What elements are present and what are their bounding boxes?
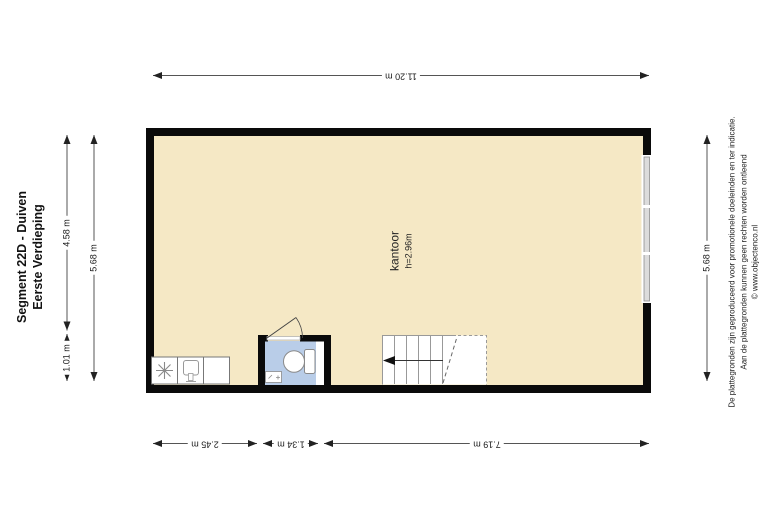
room-label: kantoor h=2.96m	[389, 231, 414, 271]
stairs	[383, 336, 487, 385]
washbasin-icon	[266, 372, 282, 383]
disclaimer-copyright: © www.objectenco.nl	[750, 116, 762, 407]
room-name: kantoor	[389, 231, 402, 271]
dim-label-bottom-2: 1.34 m	[274, 438, 308, 449]
dim-label-left-bottom: 1.01 m	[62, 341, 73, 375]
dim-label-right-total: 5.68 m	[702, 241, 713, 275]
doorway-opening	[267, 337, 300, 341]
floorplan-page: 11.20 m 2.45 m 1.34 m 7.19 m 4.58 m 1.01…	[0, 0, 780, 520]
plan-title-line2: Eerste Verdieping	[30, 191, 46, 323]
dim-label-top-width: 11.20 m	[382, 70, 420, 81]
dim-label-left-total: 5.68 m	[89, 241, 100, 275]
disclaimer-line1: De plattegronden zijn geproduceerd voor …	[727, 116, 739, 407]
room-ceiling-height: h=2.96m	[404, 231, 414, 271]
toilet-icon	[284, 350, 316, 374]
window-glazing-icon	[642, 155, 653, 303]
kitchen-counter	[152, 357, 230, 384]
dim-label-left-top: 4.58 m	[62, 216, 73, 250]
snowflake-icon	[156, 362, 173, 379]
bathroom-partition	[316, 341, 324, 385]
dim-label-bottom-1: 2.45 m	[188, 438, 222, 449]
dim-label-bottom-3: 7.19 m	[470, 438, 504, 449]
disclaimer: De plattegronden zijn geproduceerd voor …	[727, 116, 762, 407]
plan-title: Segment 22D - Duiven Eerste Verdieping	[14, 191, 47, 323]
disclaimer-line2: Aan de plattegronden kunnen geen rechten…	[738, 116, 750, 407]
plan-title-line1: Segment 22D - Duiven	[14, 191, 30, 323]
